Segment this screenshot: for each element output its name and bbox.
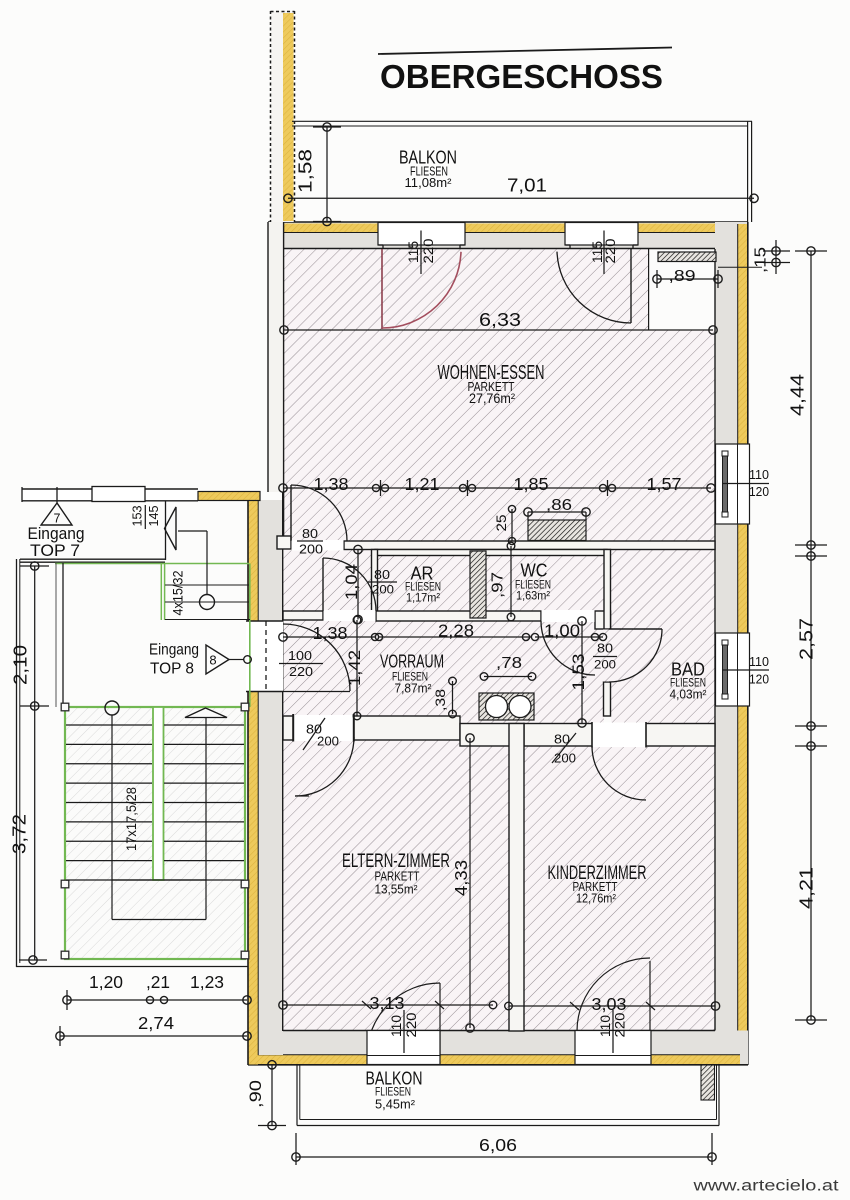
svg-text:153: 153	[130, 506, 145, 527]
svg-text:www.artecielo.at: www.artecielo.at	[692, 1177, 839, 1194]
svg-text:11,08m²: 11,08m²	[405, 175, 453, 190]
svg-text:12,76m²: 12,76m²	[576, 891, 617, 906]
svg-text:1,38: 1,38	[313, 623, 348, 643]
svg-text:200: 200	[299, 542, 323, 557]
svg-text:1,21: 1,21	[405, 474, 440, 494]
svg-text:2,74: 2,74	[138, 1013, 174, 1033]
svg-text:,90: ,90	[246, 1080, 265, 1108]
svg-text:,89: ,89	[669, 268, 696, 285]
svg-text:220: 220	[289, 665, 313, 679]
svg-text:4,21: 4,21	[796, 867, 817, 909]
svg-text:WC: WC	[521, 560, 548, 580]
svg-text:4,03m²: 4,03m²	[670, 687, 707, 701]
svg-text:4,33: 4,33	[451, 860, 471, 896]
svg-text:,38: ,38	[432, 689, 448, 711]
svg-text:,86: ,86	[546, 497, 572, 514]
svg-text:4x15/32: 4x15/32	[171, 571, 186, 616]
svg-text:25: 25	[493, 514, 509, 531]
svg-text:,15: ,15	[753, 247, 770, 273]
svg-text:110: 110	[749, 468, 769, 482]
svg-text:6,06: 6,06	[479, 1135, 517, 1155]
svg-text:110: 110	[389, 1015, 404, 1037]
svg-text:1,38: 1,38	[314, 474, 349, 494]
svg-text:BAD: BAD	[671, 659, 705, 679]
svg-text:2,10: 2,10	[10, 645, 31, 685]
svg-text:220: 220	[613, 1013, 628, 1038]
svg-text:,78: ,78	[496, 655, 522, 672]
svg-text:80: 80	[374, 567, 390, 582]
svg-text:4,44: 4,44	[787, 374, 808, 416]
svg-text:3,03: 3,03	[592, 994, 627, 1014]
svg-text:1,57: 1,57	[647, 474, 682, 494]
svg-text:1,85: 1,85	[514, 474, 549, 494]
svg-text:1,58: 1,58	[295, 149, 315, 193]
svg-text:3,13: 3,13	[370, 993, 405, 1013]
svg-text:80: 80	[597, 641, 613, 656]
svg-text:220: 220	[404, 1013, 419, 1038]
svg-text:1,42: 1,42	[345, 650, 364, 686]
svg-text:6,33: 6,33	[479, 310, 521, 330]
svg-text:VORRAUM: VORRAUM	[380, 651, 444, 672]
svg-text:TOP 7: TOP 7	[30, 541, 80, 560]
svg-text:,21: ,21	[146, 972, 170, 992]
svg-text:8: 8	[209, 653, 216, 668]
svg-text:27,76m²: 27,76m²	[469, 391, 515, 406]
svg-text:200: 200	[317, 734, 339, 748]
svg-text:Eingang: Eingang	[149, 642, 199, 659]
svg-text:145: 145	[146, 506, 161, 527]
svg-text:80: 80	[302, 526, 318, 541]
svg-text:TOP 8: TOP 8	[150, 661, 194, 678]
svg-text:220: 220	[603, 239, 618, 264]
svg-text:1,23: 1,23	[190, 972, 224, 992]
svg-text:100: 100	[288, 649, 312, 663]
svg-text:120: 120	[749, 672, 769, 686]
svg-text:200: 200	[372, 583, 394, 597]
svg-text:200: 200	[554, 751, 576, 765]
svg-text:3,72: 3,72	[9, 814, 30, 854]
svg-text:2,57: 2,57	[796, 618, 817, 660]
svg-text:13,55m²: 13,55m²	[375, 882, 419, 897]
svg-text:1,00: 1,00	[544, 621, 580, 641]
svg-text:1,17m²: 1,17m²	[406, 591, 440, 605]
svg-text:1,20: 1,20	[89, 972, 123, 992]
svg-text:110: 110	[749, 655, 769, 669]
svg-text:17x17,5/28: 17x17,5/28	[123, 787, 139, 851]
svg-text:1,53: 1,53	[569, 654, 588, 691]
svg-text:2,28: 2,28	[438, 621, 474, 641]
svg-text:,97: ,97	[490, 572, 507, 598]
svg-text:1,63m²: 1,63m²	[516, 589, 550, 603]
svg-text:OBERGESCHOSS: OBERGESCHOSS	[380, 58, 663, 95]
svg-text:220: 220	[421, 239, 436, 264]
svg-text:7,87m²: 7,87m²	[395, 681, 432, 695]
svg-text:7,01: 7,01	[507, 175, 547, 195]
svg-text:1,04: 1,04	[342, 564, 361, 600]
svg-text:115: 115	[406, 241, 421, 263]
svg-text:110: 110	[598, 1015, 613, 1037]
svg-text:200: 200	[594, 658, 616, 672]
svg-text:120: 120	[749, 485, 769, 499]
svg-text:AR: AR	[411, 563, 434, 583]
svg-text:5,45m²: 5,45m²	[375, 1097, 416, 1112]
